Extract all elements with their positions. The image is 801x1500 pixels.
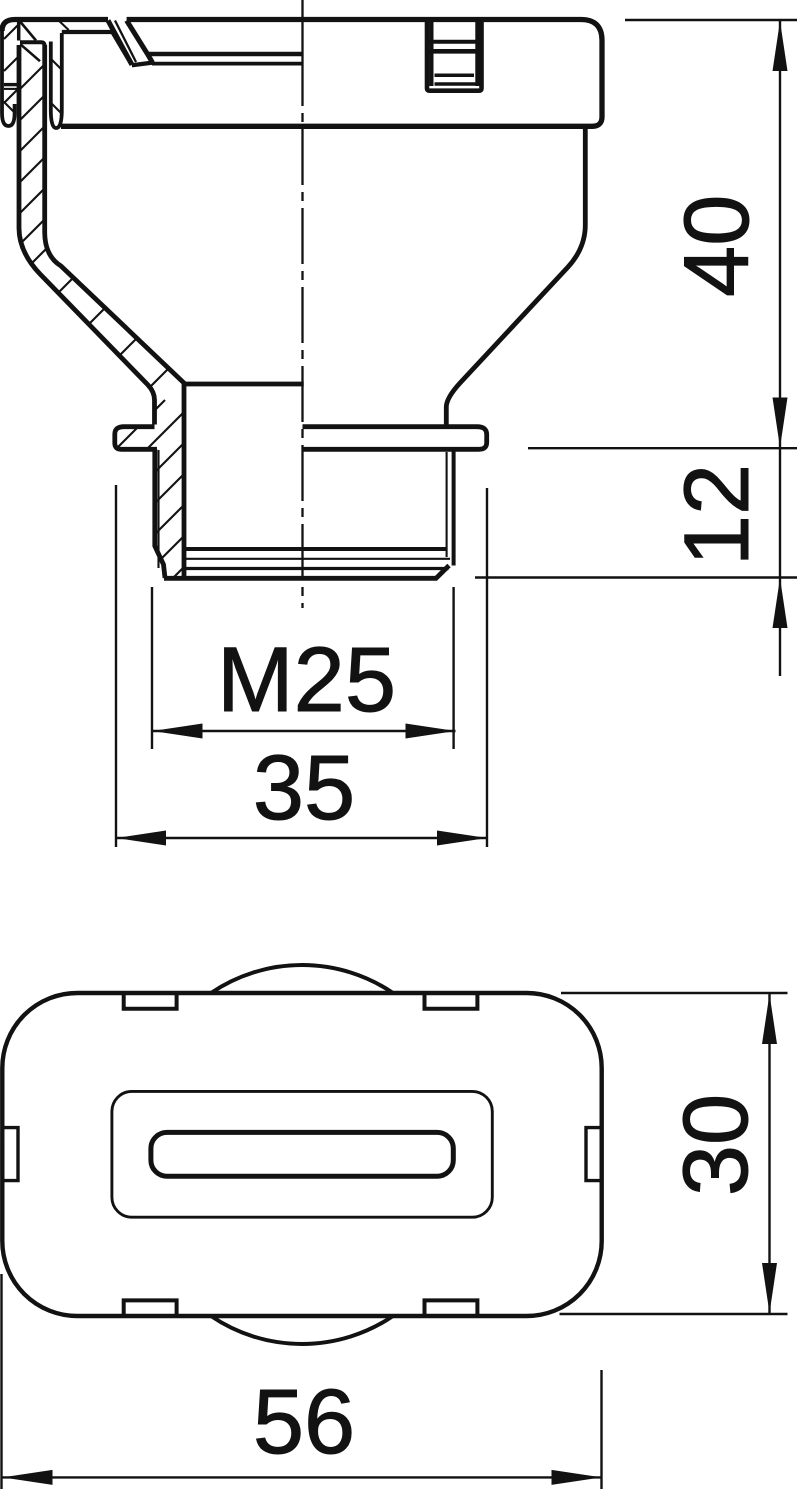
svg-text:M25: M25 [217, 629, 396, 731]
svg-text:30: 30 [665, 1094, 767, 1196]
svg-text:35: 35 [253, 737, 355, 839]
svg-text:12: 12 [666, 464, 768, 566]
svg-text:40: 40 [666, 195, 768, 297]
svg-text:56: 56 [253, 1371, 355, 1473]
